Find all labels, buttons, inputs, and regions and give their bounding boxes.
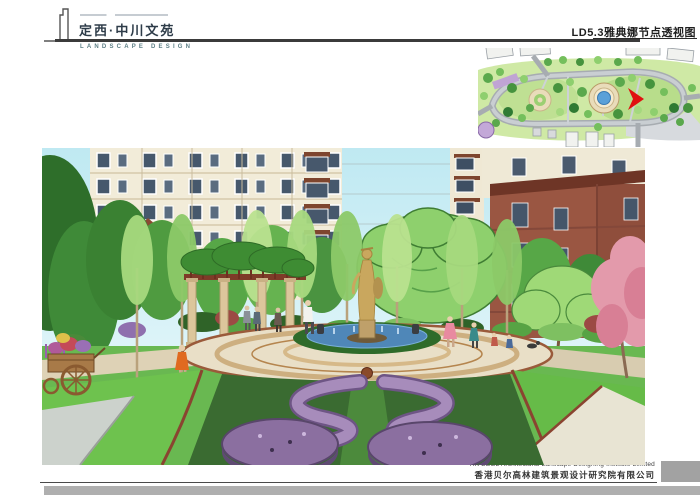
logo-building-icon [44, 8, 74, 42]
big-round-tree [357, 208, 507, 323]
header-rule [55, 39, 640, 42]
bottom-gray-bar [44, 486, 700, 495]
presentation-sheet: 定西·中川文苑 LANDSCAPE DESIGN LD5.3雅典娜节点透视图 [0, 0, 700, 495]
footer-gray-box [661, 461, 700, 482]
perspective-rendering [42, 148, 645, 465]
project-name: 定西·中川文苑 [79, 20, 175, 39]
logo-subtitle: LANDSCAPE DESIGN [80, 44, 193, 50]
footer-rule [40, 482, 657, 483]
flower-mound-right [368, 422, 492, 465]
footer-company-cn: 香港贝尔高林建筑景观设计研究院有限公司 [474, 469, 655, 481]
plan-fountain-plaza [589, 83, 619, 113]
plan-fan-feature [478, 122, 494, 138]
site-plan-inset [478, 48, 700, 147]
flower-mound-left [222, 419, 338, 465]
logo-caption-microtext [80, 14, 168, 16]
sheet-title-underline [593, 38, 697, 40]
